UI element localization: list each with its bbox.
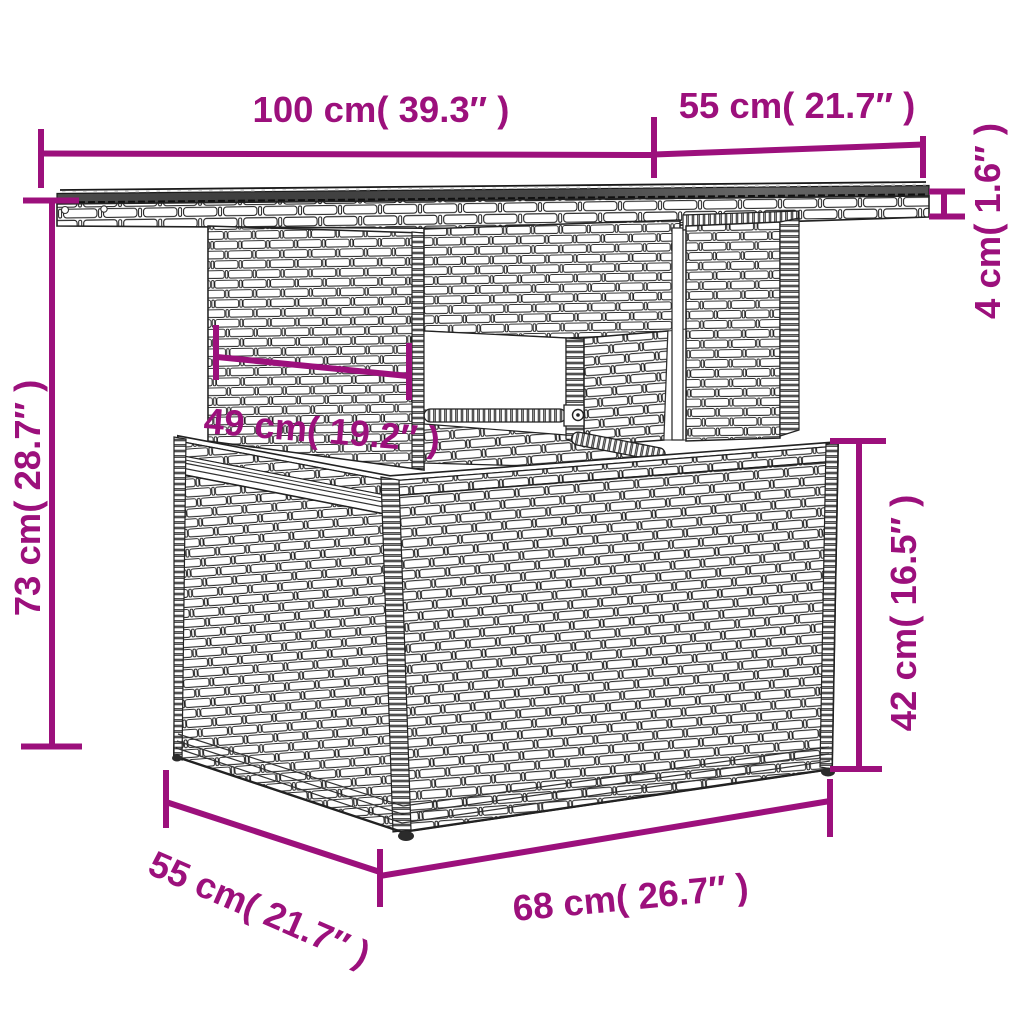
svg-text:4 cm( 1.6″ ): 4 cm( 1.6″ )	[967, 123, 1008, 319]
svg-text:100 cm( 39.3″ ): 100 cm( 39.3″ )	[253, 89, 510, 130]
svg-text:42 cm( 16.5″ ): 42 cm( 16.5″ )	[883, 495, 924, 732]
svg-text:55 cm( 21.7″ ): 55 cm( 21.7″ )	[679, 85, 916, 126]
svg-text:73 cm( 28.7″ ): 73 cm( 28.7″ )	[7, 380, 48, 617]
